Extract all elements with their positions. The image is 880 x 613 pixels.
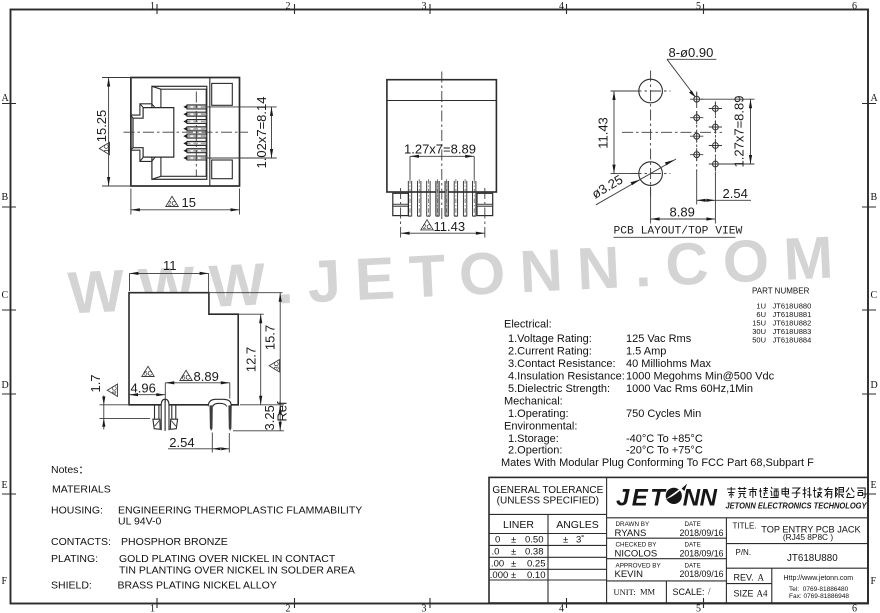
svg-text:2: 2	[286, 1, 291, 12]
svg-text:Electrical:: Electrical:	[504, 319, 552, 331]
svg-text:PHOSPHOR BRONZE: PHOSPHOR BRONZE	[121, 536, 228, 548]
svg-text:2.Current Rating:: 2.Current Rating:	[508, 346, 592, 358]
svg-text:6: 6	[852, 604, 857, 613]
svg-text:0: 0	[495, 535, 500, 546]
svg-text:DRAWN BY: DRAWN BY	[616, 521, 651, 528]
svg-text:1.Voltage Rating:: 1.Voltage Rating:	[508, 333, 592, 345]
svg-text:0.50: 0.50	[525, 535, 544, 546]
svg-text:Notes：: Notes：	[51, 464, 89, 476]
svg-text:SCALE:: SCALE:	[673, 587, 705, 597]
svg-text:E: E	[871, 480, 877, 491]
svg-text:PART NUMBER: PART NUMBER	[752, 287, 810, 296]
svg-text:Mechanical:: Mechanical:	[504, 396, 563, 408]
svg-text:3: 3	[422, 604, 427, 613]
svg-text:.000: .000	[490, 570, 509, 581]
svg-text:Fax: 0769-81886948: Fax: 0769-81886948	[789, 593, 849, 600]
svg-text:F: F	[2, 576, 8, 587]
svg-text:DATE: DATE	[685, 541, 701, 548]
svg-text:0.10: 0.10	[527, 570, 546, 581]
svg-text:C: C	[871, 290, 878, 301]
svg-text:UL 94V-0: UL 94V-0	[118, 516, 162, 528]
svg-text:2018/09/16: 2018/09/16	[680, 549, 724, 559]
svg-text:Ref: Ref	[275, 401, 290, 422]
svg-text:(RJ45 8P8C ): (RJ45 8P8C )	[783, 532, 833, 542]
svg-text:1.02x7=8.14: 1.02x7=8.14	[254, 97, 269, 169]
svg-text:-40°C To +85°C: -40°C To +85°C	[626, 433, 703, 445]
svg-text:HOUSING:: HOUSING:	[51, 505, 103, 517]
svg-text:3C: 3C	[273, 361, 280, 370]
svg-text:E: E	[2, 480, 8, 491]
svg-text:8-ø0.90: 8-ø0.90	[669, 45, 714, 60]
svg-text:-20°C To +75°C: -20°C To +75°C	[626, 445, 703, 457]
svg-text:1.Operating:: 1.Operating:	[508, 408, 569, 420]
svg-text:15: 15	[182, 195, 196, 210]
svg-text:1.27x7=8.89: 1.27x7=8.89	[732, 96, 747, 168]
svg-text:TITLE.: TITLE.	[733, 521, 757, 530]
svg-text:4.96: 4.96	[131, 381, 156, 396]
svg-text:JETONN ELECTRONICS TECHNOLOGY: JETONN ELECTRONICS TECHNOLOGY	[726, 501, 868, 510]
svg-text:2018/09/16: 2018/09/16	[680, 528, 724, 538]
svg-text:(UNLESS SPECIFIED): (UNLESS SPECIFIED)	[497, 496, 599, 507]
svg-text:4: 4	[559, 1, 564, 12]
svg-text:NN: NN	[683, 484, 718, 511]
svg-text:D: D	[871, 380, 878, 391]
svg-text:750 Cycles Min: 750 Cycles Min	[626, 408, 701, 420]
svg-text:P/N.: P/N.	[736, 548, 752, 557]
svg-text:MM: MM	[640, 587, 656, 597]
svg-text:2C: 2C	[168, 200, 177, 207]
svg-text:A: A	[2, 93, 10, 104]
svg-text:15.25: 15.25	[94, 110, 109, 143]
svg-text:MATERIALS: MATERIALS	[52, 484, 111, 496]
svg-text:4: 4	[559, 604, 564, 613]
svg-text:NICOLOS: NICOLOS	[615, 549, 658, 560]
svg-text:JT618U884: JT618U884	[773, 336, 812, 345]
svg-text:JET: JET	[616, 484, 667, 511]
svg-text:1000 Megohms Min@500 Vdc: 1000 Megohms Min@500 Vdc	[626, 371, 775, 383]
svg-text:CONTACTS:: CONTACTS:	[51, 536, 111, 548]
svg-text:A4: A4	[757, 589, 768, 599]
svg-text:11.43: 11.43	[434, 219, 466, 234]
svg-text:8.89: 8.89	[670, 205, 695, 220]
svg-text:1: 1	[150, 1, 155, 12]
svg-text:11.43: 11.43	[596, 117, 611, 149]
svg-text:125 Vac Rms: 125 Vac Rms	[626, 333, 692, 345]
svg-text:6: 6	[852, 1, 857, 12]
svg-text:JT618U880: JT618U880	[787, 553, 838, 564]
svg-text:±: ±	[511, 570, 516, 581]
svg-text:B: B	[871, 192, 878, 203]
svg-text:0.38: 0.38	[525, 547, 544, 558]
svg-text:PCB LAYOUT/TOP VIEW: PCB LAYOUT/TOP VIEW	[614, 226, 743, 238]
svg-text:40 Milliohms Max: 40 Milliohms Max	[626, 358, 711, 370]
svg-text:ANGLES: ANGLES	[556, 519, 599, 531]
svg-text:2.54: 2.54	[169, 435, 194, 450]
svg-text:1.27x7=8.89: 1.27x7=8.89	[404, 141, 476, 156]
svg-text:0.25: 0.25	[527, 559, 546, 570]
svg-text:A: A	[758, 573, 765, 583]
svg-text:GENERAL TOLERANCE: GENERAL TOLERANCE	[492, 485, 603, 496]
svg-text:CHECKED BY: CHECKED BY	[616, 541, 658, 548]
svg-text:RYANS: RYANS	[615, 528, 647, 539]
svg-text:1: 1	[150, 604, 155, 613]
svg-text:Environmental:: Environmental:	[504, 421, 577, 433]
svg-text:4C: 4C	[111, 386, 118, 395]
svg-text:50U: 50U	[752, 336, 766, 345]
svg-text:4.Insulation Resistance:: 4.Insulation Resistance:	[508, 371, 625, 383]
svg-text:±: ±	[511, 547, 516, 558]
svg-text:5C: 5C	[144, 370, 153, 377]
svg-text:B: B	[2, 192, 9, 203]
svg-text:SIZE: SIZE	[734, 589, 754, 599]
svg-text:BRASS PLATING NICKEL ALLOY: BRASS PLATING NICKEL ALLOY	[118, 580, 277, 592]
svg-text:GOLD PLATING OVER NICKEL IN CO: GOLD PLATING OVER NICKEL IN CONTACT	[119, 553, 336, 565]
svg-text:PLATING:: PLATING:	[51, 553, 98, 565]
svg-text:2.54: 2.54	[723, 186, 748, 201]
svg-text:15.7: 15.7	[263, 325, 278, 350]
svg-text:±: ±	[511, 559, 516, 570]
svg-text:D: D	[2, 380, 9, 391]
svg-text:1000 Vac Rms 60Hz,1Min: 1000 Vac Rms 60Hz,1Min	[626, 383, 753, 395]
svg-text:2: 2	[286, 604, 291, 613]
svg-text:3˚: 3˚	[576, 535, 584, 546]
svg-text:11: 11	[163, 258, 177, 273]
svg-text:LINER: LINER	[503, 519, 534, 531]
svg-text:5.Dielectric Strength:: 5.Dielectric Strength:	[508, 383, 610, 395]
svg-text:8.89: 8.89	[194, 369, 219, 384]
svg-text:3.Contact Resistance:: 3.Contact Resistance:	[508, 358, 616, 370]
svg-text:1C: 1C	[103, 144, 110, 153]
svg-text:C: C	[2, 290, 9, 301]
svg-text:±: ±	[511, 535, 516, 546]
svg-text:KEVIN: KEVIN	[615, 569, 644, 580]
svg-text:2.Opertion:: 2.Opertion:	[508, 445, 562, 457]
svg-text:.0: .0	[492, 547, 500, 558]
svg-text:A: A	[871, 93, 879, 104]
svg-text:3: 3	[422, 1, 427, 12]
svg-text:UNIT:: UNIT:	[614, 587, 636, 597]
svg-text:5: 5	[696, 1, 701, 12]
svg-text:2C: 2C	[423, 224, 432, 231]
svg-text:1.7: 1.7	[88, 374, 103, 392]
svg-text:F: F	[871, 576, 877, 587]
svg-text:Http://www.jetonn.com: Http://www.jetonn.com	[784, 575, 854, 582]
svg-text:6C: 6C	[182, 374, 191, 381]
svg-text:SHIELD:: SHIELD:	[51, 580, 92, 592]
svg-text:DATE: DATE	[685, 521, 701, 528]
svg-text:±: ±	[563, 535, 568, 546]
svg-text:Mates With Modular Plug Confor: Mates With Modular Plug Conforming To FC…	[501, 457, 814, 469]
svg-text:.00: .00	[491, 559, 504, 570]
svg-text:5: 5	[696, 604, 701, 613]
svg-text:2018/09/16: 2018/09/16	[680, 569, 724, 579]
svg-text:TIN PLANTING OVER NICKEL IN SO: TIN PLANTING OVER NICKEL IN SOLDER AREA	[119, 565, 355, 577]
svg-text:12.7: 12.7	[244, 347, 259, 372]
svg-text:1.5 Amp: 1.5 Amp	[626, 346, 666, 358]
svg-text:Tel: 0769-81886480: Tel: 0769-81886480	[789, 586, 849, 593]
svg-text:REV.: REV.	[734, 573, 754, 583]
svg-text:1.Storage:: 1.Storage:	[508, 433, 559, 445]
